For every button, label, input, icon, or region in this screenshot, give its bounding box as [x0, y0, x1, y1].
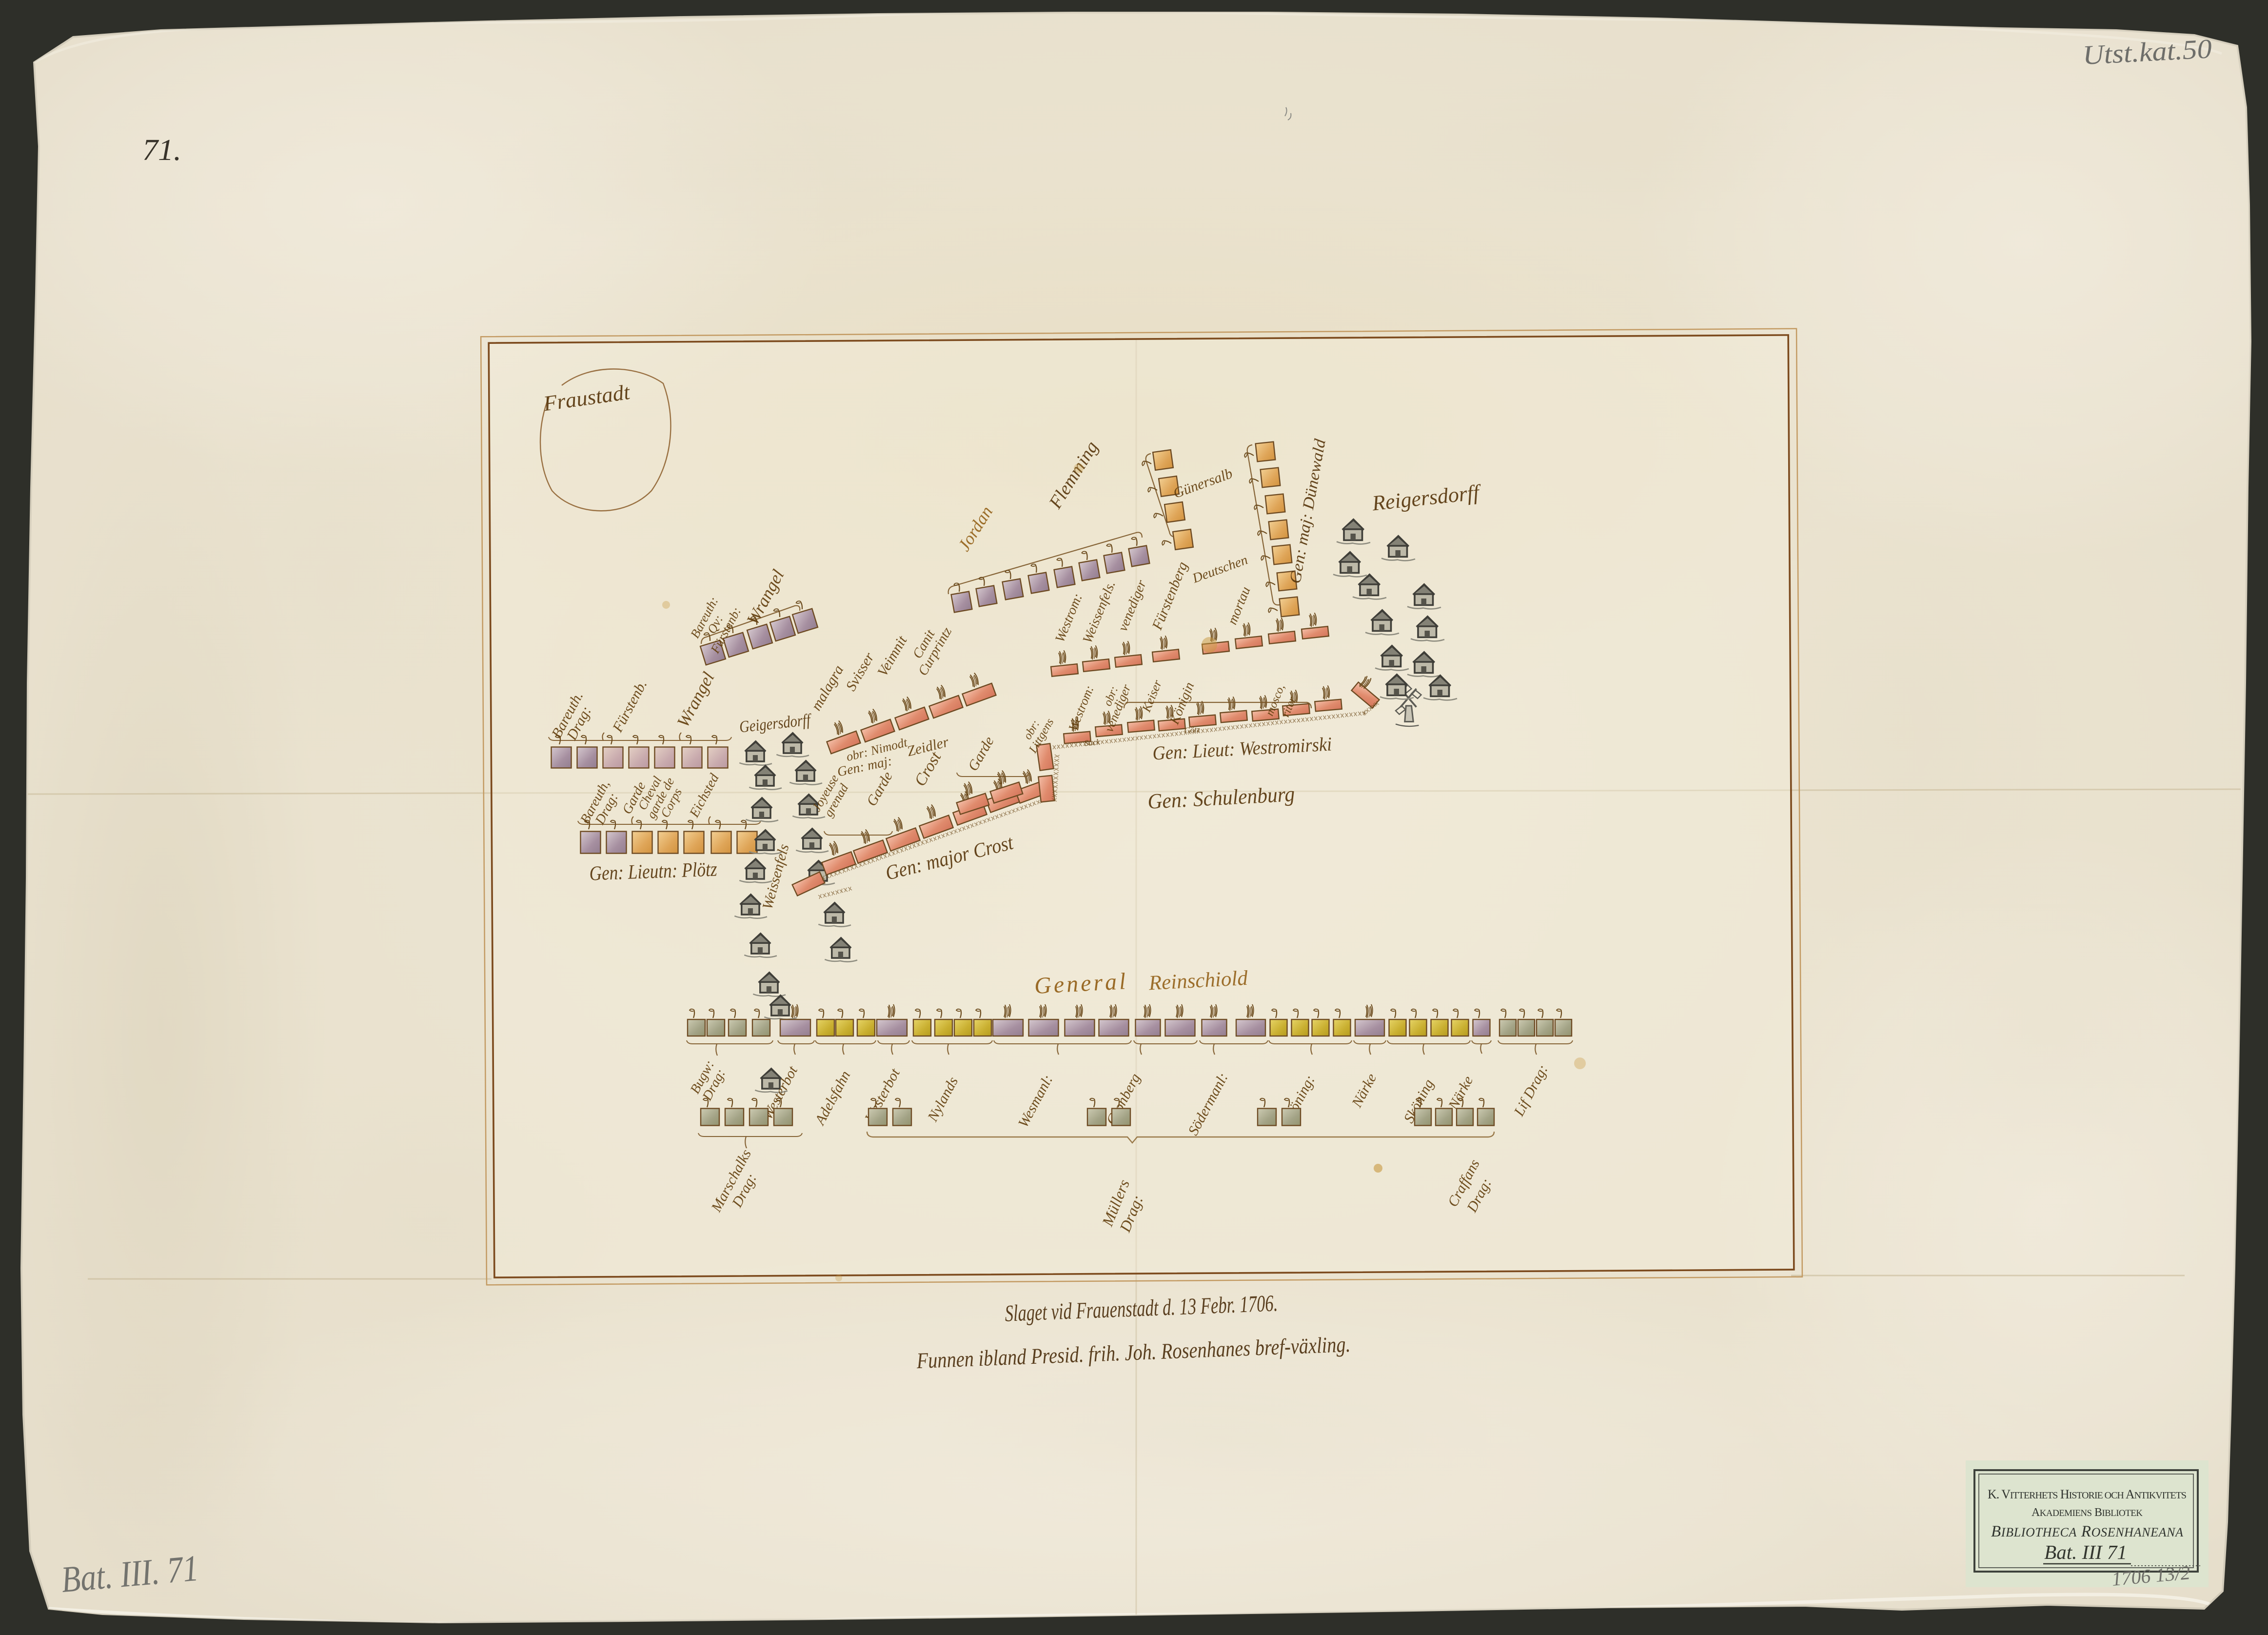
svg-text:BIBLIOTHECA ROSENHANEANA: BIBLIOTHECA ROSENHANEANA [1991, 1523, 2183, 1540]
svg-text:AKADEMIENS BIBLIOTEK: AKADEMIENS BIBLIOTEK [2031, 1506, 2143, 1519]
svg-text:General: General [1034, 968, 1129, 999]
svg-text:Bat. III 71: Bat. III 71 [2044, 1541, 2127, 1563]
svg-text:Götz: Götz [1184, 725, 1201, 736]
svg-text:71.: 71. [142, 134, 181, 167]
svg-text:Sack: Sack [1084, 738, 1101, 748]
svg-text:Gen: Lieutn: Plötz: Gen: Lieutn: Plötz [589, 858, 717, 885]
